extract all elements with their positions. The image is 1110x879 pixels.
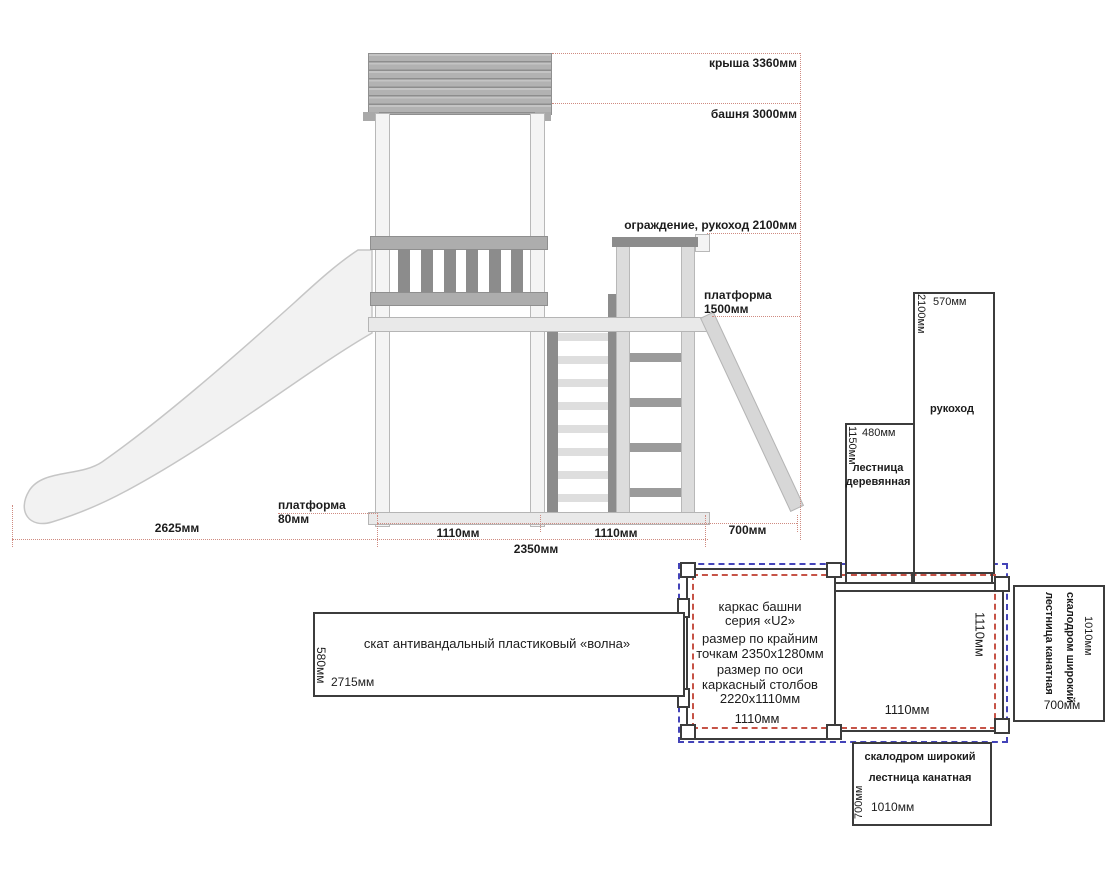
climb-right-titles: скалодром широкий лестница канатная bbox=[1038, 592, 1080, 710]
climb-bottom-length: 1010мм bbox=[871, 801, 914, 814]
dim-slide-run: 2625мм bbox=[127, 522, 227, 536]
diagonal-brace bbox=[700, 312, 804, 512]
slide-shape bbox=[0, 225, 400, 545]
monkeybar-top-bar bbox=[612, 237, 698, 247]
dim-line-tower bbox=[552, 103, 800, 104]
plan-dim-depth: 1110мм bbox=[972, 612, 987, 692]
dim-bay-right: 1110мм bbox=[566, 527, 666, 541]
railing-top-rail bbox=[370, 236, 548, 250]
plan-corner-post bbox=[826, 724, 842, 740]
climb-right-length: 1010мм bbox=[1082, 616, 1094, 668]
dim-line-railing bbox=[707, 233, 800, 234]
railing-bottom-rail bbox=[370, 292, 548, 306]
plan-title-line2: серия «U2» bbox=[685, 614, 835, 629]
baluster bbox=[398, 249, 410, 293]
wooden-ladder-rail-left bbox=[547, 318, 558, 518]
plan-axis-size: размер по оси каркасный столбов 2220х111… bbox=[693, 663, 827, 707]
slide-box-height: 580мм bbox=[314, 647, 327, 691]
baluster bbox=[489, 249, 501, 293]
dim-line-right-vertical bbox=[800, 53, 801, 540]
label-platform-plank: платформа 80мм bbox=[278, 499, 378, 527]
plan-dim-left-bay: 1110мм bbox=[707, 712, 807, 727]
baluster bbox=[444, 249, 456, 293]
monkey-bars-title: рукоход bbox=[913, 403, 991, 417]
climb-right-width: 700мм bbox=[1032, 699, 1092, 712]
plan-outer-size: размер по крайним точкам 2350х1280мм bbox=[684, 632, 836, 661]
roof bbox=[368, 53, 552, 115]
label-railing-height: ограждение, рукоход 2100мм bbox=[597, 219, 797, 233]
monkey-bars-height: 2100мм bbox=[915, 294, 927, 344]
baluster bbox=[511, 249, 523, 293]
baluster bbox=[466, 249, 478, 293]
wooden-ladder-title: лестница деревянная bbox=[845, 462, 911, 490]
plan-dim-right-bay: 1110мм bbox=[857, 703, 957, 718]
label-roof-height: крыша 3360мм bbox=[647, 57, 797, 71]
climb-right-line2: лестница канатная bbox=[1038, 592, 1059, 710]
baluster bbox=[421, 249, 433, 293]
plan-corner-post bbox=[826, 562, 842, 578]
dim-tick bbox=[540, 515, 541, 532]
blueprint-canvas: крыша 3360мм башня 3000мм ограждение, ру… bbox=[0, 0, 1110, 879]
monkey-bars-width: 570мм bbox=[933, 296, 966, 308]
label-tower-height: башня 3000мм bbox=[647, 108, 797, 122]
wooden-ladder-width: 480мм bbox=[862, 427, 895, 439]
monkeybar-rail-right bbox=[681, 240, 695, 522]
dim-tick bbox=[797, 515, 798, 532]
label-platform-height: платформа 1500мм bbox=[704, 289, 776, 317]
slide-box-title: скат антивандальный пластиковый «волна» bbox=[323, 637, 671, 652]
monkeybar-rail-left bbox=[616, 240, 630, 522]
dim-tick bbox=[12, 505, 13, 547]
plan-corner-post bbox=[680, 562, 696, 578]
plan-corner-post bbox=[994, 576, 1010, 592]
climb-right-line1: скалодром широкий bbox=[1059, 592, 1080, 710]
climb-bottom-line1: скалодром широкий bbox=[852, 751, 988, 765]
dim-bay-left: 1110мм bbox=[408, 527, 508, 541]
slide-box-length: 2715мм bbox=[331, 676, 374, 689]
dim-brace: 700мм bbox=[700, 524, 795, 538]
plan-corner-post bbox=[994, 718, 1010, 734]
plan-right-cell-inner-edge bbox=[836, 590, 1000, 592]
dim-frame-width: 2350мм bbox=[486, 543, 586, 557]
climb-bottom-width: 700мм bbox=[853, 777, 865, 819]
platform-beam bbox=[368, 317, 710, 332]
dim-line-roof bbox=[552, 53, 800, 54]
plan-corner-post bbox=[680, 724, 696, 740]
climb-bottom-line2: лестница канатная bbox=[852, 772, 988, 786]
